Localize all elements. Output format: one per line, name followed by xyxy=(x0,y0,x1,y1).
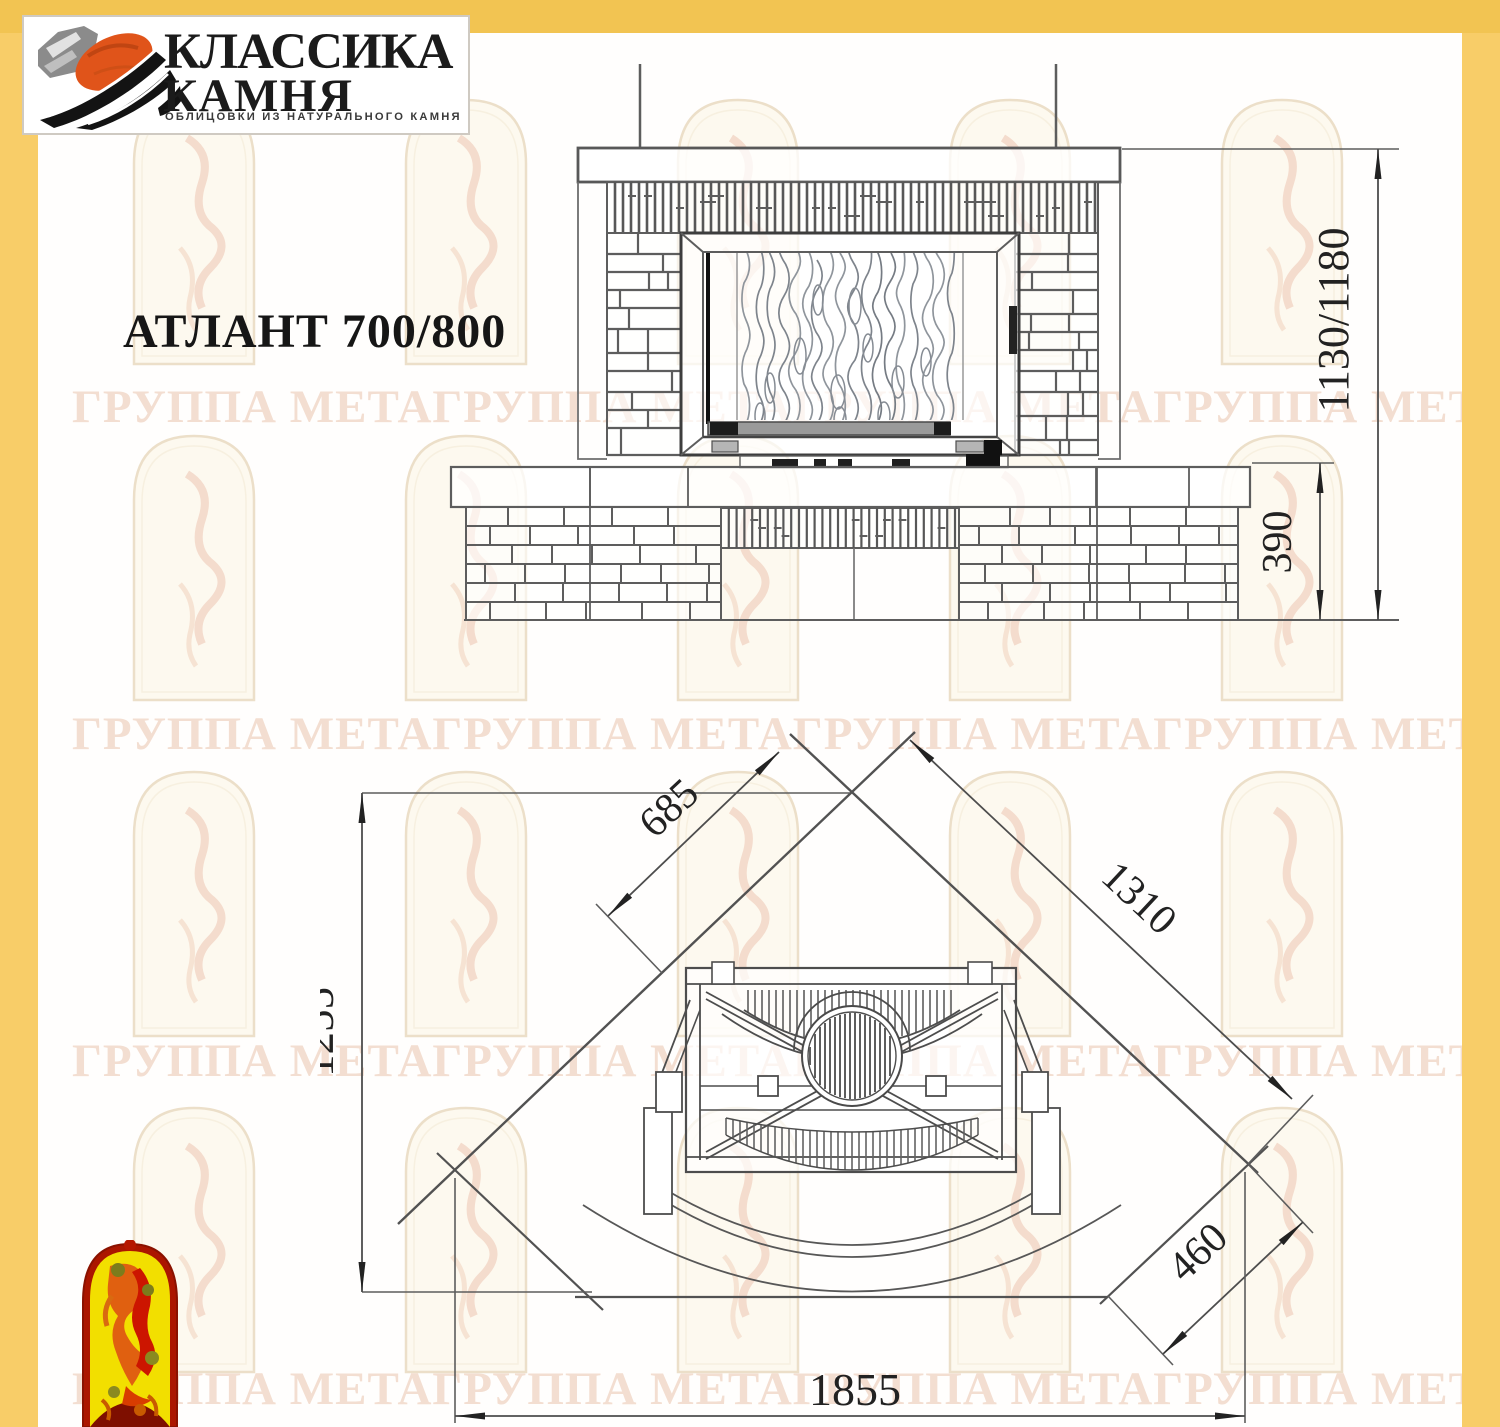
svg-text:1310: 1310 xyxy=(1092,853,1185,944)
svg-text:1130/1180: 1130/1180 xyxy=(1309,228,1358,413)
svg-text:1855: 1855 xyxy=(809,1364,901,1415)
svg-text:390: 390 xyxy=(1255,511,1301,574)
svg-text:685: 685 xyxy=(630,770,707,847)
svg-text:1255: 1255 xyxy=(320,987,343,1077)
svg-text:460: 460 xyxy=(1159,1214,1236,1291)
